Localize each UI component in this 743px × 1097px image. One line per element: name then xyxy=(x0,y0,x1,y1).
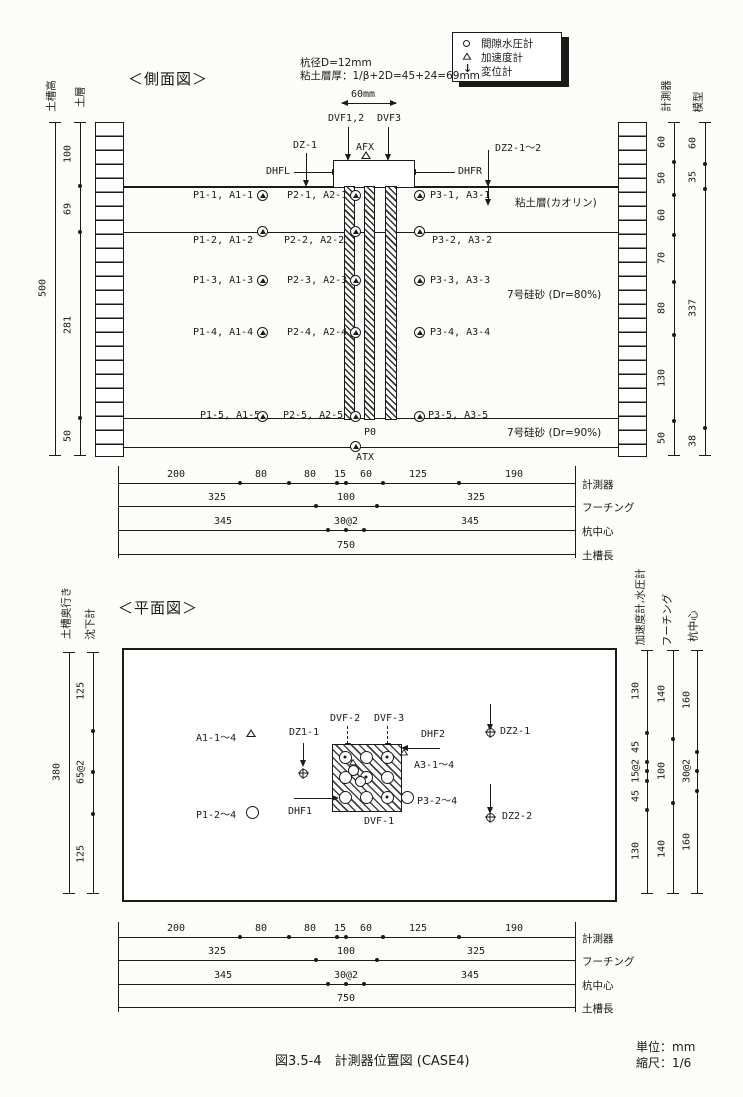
dim-value: 325 xyxy=(467,946,485,957)
dim-seg: 50 xyxy=(63,430,74,442)
footing-side-view xyxy=(333,160,415,188)
sensor-row-label: P1-1, A1-1 xyxy=(193,190,253,201)
sensor-row-label: P3-3, A3-3 xyxy=(430,275,490,286)
table-row-label: 計測器 xyxy=(582,477,614,492)
dot xyxy=(645,779,649,783)
dimension-line xyxy=(673,650,674,893)
pp-accel-sensor-icon xyxy=(257,411,268,422)
dot xyxy=(91,729,95,733)
dimension-line xyxy=(80,122,81,455)
pp-accel-sensor-icon xyxy=(350,275,361,286)
dim-seg: 50 xyxy=(657,172,668,184)
dim-value: 125 xyxy=(409,469,427,480)
dot xyxy=(703,426,707,430)
dim-value: 60 xyxy=(360,469,372,480)
settlement-target-icon xyxy=(486,728,495,737)
dvf12-label: DVF1,2 xyxy=(328,113,364,124)
drawing-sheet: ↓ 間隙水圧計 加速度計 変位計 ＜側面図＞ 杭径D=12mm 粘土層厚：1/β… xyxy=(0,0,743,1097)
pp-accel-sensor-icon xyxy=(257,327,268,338)
dot xyxy=(78,230,82,234)
tick xyxy=(691,893,703,894)
dot xyxy=(672,193,676,197)
a1-group-label: A1-1〜4 xyxy=(196,729,236,744)
width-dim-arrow xyxy=(342,103,396,104)
accelerometer-icon xyxy=(463,52,472,59)
dim-value: 200 xyxy=(167,923,185,934)
dvf-arrow xyxy=(388,127,389,155)
dhfl-arrow xyxy=(294,172,332,173)
dot xyxy=(362,528,366,532)
dim-value: 325 xyxy=(208,492,226,503)
dim-total: 380 xyxy=(52,763,63,781)
dim-seg: 65@2 xyxy=(76,760,87,784)
pile-head xyxy=(360,751,373,764)
scale-note: 縮尺：1/6 xyxy=(636,1054,691,1071)
sensor-dot xyxy=(365,776,368,779)
dot xyxy=(457,481,461,485)
dim-value: 80 xyxy=(304,923,316,934)
dvf3-label: DVF-3 xyxy=(374,713,404,724)
dz11-arrow xyxy=(303,743,304,761)
dot xyxy=(671,737,675,741)
tick xyxy=(668,122,680,123)
table-border xyxy=(118,922,119,1012)
table-border xyxy=(575,922,576,1012)
legend-label: 間隙水圧計 xyxy=(481,36,534,51)
settlement-target-icon xyxy=(486,813,495,822)
dhfr-label: DHFR xyxy=(458,166,482,177)
dim-seg: 70 xyxy=(657,252,668,264)
sensor-dot xyxy=(344,756,347,759)
sensor-row-label: P3-2, A3-2 xyxy=(432,235,492,246)
dim-value: 345 xyxy=(461,516,479,527)
dot xyxy=(645,760,649,764)
sensor-row-label: P2-4, A2-4 xyxy=(287,327,347,338)
sensor-row-label: P3-1, A3-1 xyxy=(430,190,490,201)
p0-label: P0 xyxy=(364,427,376,438)
dot xyxy=(78,184,82,188)
dot xyxy=(672,280,676,284)
dim-seg: 130 xyxy=(631,682,642,700)
dim-seg: 140 xyxy=(657,840,668,858)
table-line xyxy=(118,1007,575,1008)
dot xyxy=(91,812,95,816)
pile-shaft xyxy=(344,186,355,420)
side-view-title: ＜側面図＞ xyxy=(128,68,208,89)
dot xyxy=(375,504,379,508)
dim-value: 345 xyxy=(461,970,479,981)
sensor-row-label: P2-2, A2-2 xyxy=(284,235,344,246)
sensor-dot xyxy=(386,756,389,759)
dz11-label: DZ1-1 xyxy=(289,727,319,738)
pile-head xyxy=(339,791,352,804)
tick xyxy=(49,122,61,123)
dim-value: 100 xyxy=(337,946,355,957)
dim-value: 345 xyxy=(214,516,232,527)
dim-value: 80 xyxy=(304,469,316,480)
dot xyxy=(326,528,330,532)
dot xyxy=(314,504,318,508)
tank-height-header: 土槽高 xyxy=(44,80,59,112)
dim-value: 200 xyxy=(167,469,185,480)
dim-value: 15 xyxy=(334,923,346,934)
soil-layer-header: 土層 xyxy=(73,87,88,108)
tick xyxy=(667,893,679,894)
tick xyxy=(49,455,61,456)
dot xyxy=(344,935,348,939)
tick xyxy=(74,122,86,123)
dot xyxy=(672,333,676,337)
sensor-row-label: P3-4, A3-4 xyxy=(430,327,490,338)
dim-value: 750 xyxy=(337,993,355,1004)
tick xyxy=(87,893,99,894)
table-border xyxy=(575,466,576,558)
pp-accel-sensor-icon xyxy=(414,190,425,201)
clay-thickness-note: 粘土層厚：1/β+2D=45+24=69mm xyxy=(300,68,480,83)
table-row-label: 計測器 xyxy=(582,931,614,946)
tick xyxy=(699,122,711,123)
dim-seg: 140 xyxy=(657,685,668,703)
accelerometer-icon xyxy=(349,759,357,765)
table-row-label: 杭中心 xyxy=(582,524,614,539)
p3-group-label: P3-2〜4 xyxy=(417,792,457,807)
dim-value: 750 xyxy=(337,540,355,551)
width-dim-label: 60mm xyxy=(351,89,375,100)
dot xyxy=(671,801,675,805)
dot xyxy=(645,808,649,812)
dim-seg: 337 xyxy=(688,299,699,317)
dim-seg: 60 xyxy=(688,137,699,149)
pile-head xyxy=(348,765,359,776)
tick xyxy=(87,652,99,653)
sensor-row-label: P1-4, A1-4 xyxy=(193,327,253,338)
dimension-line xyxy=(55,122,56,455)
sand80-layer-label: 7号硅砂 (Dr=80%) xyxy=(507,287,601,302)
legend-label: 変位計 xyxy=(481,64,513,79)
atx-label: ATX xyxy=(356,452,374,463)
dot xyxy=(314,958,318,962)
table-row-label: 杭中心 xyxy=(582,978,614,993)
dot xyxy=(703,187,707,191)
pp-accel-sensor-icon xyxy=(414,226,425,237)
tick xyxy=(668,455,680,456)
dvf-arrow xyxy=(347,726,348,744)
dvf-arrow xyxy=(387,726,388,744)
dot xyxy=(78,416,82,420)
dz22-label: DZ2-2 xyxy=(502,811,532,822)
dvf-arrow xyxy=(348,127,349,155)
dot xyxy=(381,481,385,485)
dz2-label: DZ2-1〜2 xyxy=(495,139,541,154)
dim-value: 60 xyxy=(360,923,372,934)
pp-accel-sensor-icon xyxy=(257,190,268,201)
sand90-layer-label: 7号硅砂 (Dr=90%) xyxy=(507,425,601,440)
dot xyxy=(703,162,707,166)
pp-accel-sensor-icon xyxy=(350,327,361,338)
dim-seg: 281 xyxy=(63,316,74,334)
dot xyxy=(91,770,95,774)
dz1-label: DZ-1 xyxy=(293,140,317,151)
instrument-dims-header: 計測器 xyxy=(659,80,674,112)
dvf1-label: DVF-1 xyxy=(364,816,394,827)
pile-shaft xyxy=(364,186,375,420)
dim-value: 15 xyxy=(334,469,346,480)
dim-seg: 80 xyxy=(657,302,668,314)
settlement-target-icon xyxy=(299,769,308,778)
settlement-gauge-header: 沈下計 xyxy=(83,608,98,640)
dim-seg: 50 xyxy=(657,432,668,444)
dim-value: 80 xyxy=(255,469,267,480)
pile-shaft xyxy=(385,186,397,420)
sensor-row-label: P1-3, A1-3 xyxy=(193,275,253,286)
sensor-row-label: P2-5, A2-5 xyxy=(283,410,343,421)
tick xyxy=(641,893,653,894)
dot xyxy=(672,160,676,164)
sensor-row-label: P2-1, A2-1 xyxy=(287,190,347,201)
a3-accelerometer-icon xyxy=(400,749,409,756)
table-line xyxy=(118,506,575,507)
dot xyxy=(695,750,699,754)
dim-value: 80 xyxy=(255,923,267,934)
sensor-row-label: P1-5, A1-5 xyxy=(200,410,260,421)
pp-accel-sensor-icon xyxy=(414,411,425,422)
tick xyxy=(63,893,75,894)
dz1-arrow xyxy=(306,153,307,181)
sensor-row-label: P1-2, A1-2 xyxy=(193,235,253,246)
table-row-label: フーチング xyxy=(582,954,635,969)
table-border xyxy=(118,466,119,558)
dim-value: 325 xyxy=(467,492,485,503)
sensor-row-label: P2-3, A2-3 xyxy=(287,275,347,286)
tick xyxy=(691,650,703,651)
accelerometer-icon xyxy=(246,729,256,737)
table-row-label: 土槽長 xyxy=(582,1001,614,1016)
dot xyxy=(344,481,348,485)
dim-seg: 69 xyxy=(63,203,74,215)
dot xyxy=(344,982,348,986)
dot xyxy=(335,935,339,939)
pp-accel-sensor-icon xyxy=(350,190,361,201)
right-tank-wall xyxy=(618,122,647,457)
dim-value: 125 xyxy=(409,923,427,934)
dim-seg: 160 xyxy=(682,691,693,709)
dhf1-arrow xyxy=(294,798,332,799)
pile-center-dims-header: 杭中心 xyxy=(686,610,701,642)
dot xyxy=(238,481,242,485)
table-line xyxy=(118,554,575,555)
dhf2-arrow xyxy=(408,748,440,749)
left-tank-wall xyxy=(95,122,124,457)
dim-seg: 35 xyxy=(688,171,699,183)
dim-seg: 30@2 xyxy=(682,759,693,783)
dhfl-label: DHFL xyxy=(266,166,290,177)
pore-pressure-gauge-icon xyxy=(463,40,470,47)
dot xyxy=(645,769,649,773)
pile-head xyxy=(381,771,394,784)
dim-value: 325 xyxy=(208,946,226,957)
dot xyxy=(238,935,242,939)
tick xyxy=(63,652,75,653)
dim-seg: 125 xyxy=(76,682,87,700)
dim-total: 500 xyxy=(38,279,49,297)
pp-accel-sensor-icon xyxy=(350,226,361,237)
tick xyxy=(699,455,711,456)
dim-value: 345 xyxy=(214,970,232,981)
dim-value: 190 xyxy=(505,469,523,480)
dz21-label: DZ2-1 xyxy=(500,726,530,737)
dim-seg: 130 xyxy=(631,842,642,860)
dim-seg: 125 xyxy=(76,845,87,863)
dim-value: 30@2 xyxy=(334,970,358,981)
dot xyxy=(672,419,676,423)
dvf2-label: DVF-2 xyxy=(330,713,360,724)
table-line xyxy=(118,960,575,961)
dim-seg: 60 xyxy=(657,136,668,148)
dim-seg: 45 xyxy=(631,790,642,802)
pp-accel-sensor-icon xyxy=(350,411,361,422)
afx-accelerometer-icon xyxy=(361,151,371,159)
p1-group-label: P1-2〜4 xyxy=(196,806,236,821)
table-row-label: フーチング xyxy=(582,500,635,515)
dim-seg: 15@2 xyxy=(631,759,642,783)
dim-seg: 100 xyxy=(63,145,74,163)
dot xyxy=(326,982,330,986)
dot xyxy=(362,982,366,986)
dimension-line xyxy=(674,122,675,455)
p3-gauge-icon xyxy=(401,791,414,804)
pp-accel-sensor-icon xyxy=(257,275,268,286)
a3-group-label: A3-1〜4 xyxy=(414,756,454,771)
dvf3-label: DVF3 xyxy=(377,113,401,124)
tick xyxy=(74,455,86,456)
sensor-dot xyxy=(386,796,389,799)
dot xyxy=(381,935,385,939)
tick xyxy=(667,650,679,651)
dot xyxy=(695,789,699,793)
dim-value: 100 xyxy=(337,492,355,503)
pp-accel-sensor-icon xyxy=(257,226,268,237)
dz21-arrow xyxy=(490,704,491,725)
dot xyxy=(287,481,291,485)
dot xyxy=(457,935,461,939)
dot xyxy=(695,769,699,773)
dimension-line xyxy=(705,122,706,455)
footing-dims-header: フーチング xyxy=(660,594,675,647)
dot xyxy=(287,935,291,939)
legend-label: 加速度計 xyxy=(481,50,523,65)
dim-value: 190 xyxy=(505,923,523,934)
dim-seg: 45 xyxy=(631,741,642,753)
tick xyxy=(641,650,653,651)
pp-accel-sensor-icon xyxy=(350,441,361,452)
dim-seg: 100 xyxy=(657,762,668,780)
pp-accel-sensor-icon xyxy=(414,327,425,338)
table-row-label: 土槽長 xyxy=(582,548,614,563)
dim-seg: 130 xyxy=(657,369,668,387)
clay-layer-label: 粘土層(カオリン) xyxy=(515,195,597,210)
sensor-row-label: P3-5, A3-5 xyxy=(428,410,488,421)
plan-view-title: ＜平面図＞ xyxy=(118,597,198,618)
accel-pp-dims-header: 加速度計,水圧計 xyxy=(633,569,648,646)
dot xyxy=(645,731,649,735)
dhf2-label: DHF2 xyxy=(421,729,445,740)
dim-seg: 38 xyxy=(688,435,699,447)
dim-value: 30@2 xyxy=(334,516,358,527)
unit-note: 単位：mm xyxy=(636,1038,695,1055)
dot xyxy=(344,528,348,532)
dz22-arrow xyxy=(490,784,491,808)
figure-caption: 図3.5-4 計測器位置図 (CASE4) xyxy=(275,1050,470,1069)
pp-accel-sensor-icon xyxy=(414,275,425,286)
p1-gauge-icon xyxy=(246,806,259,819)
dim-seg: 60 xyxy=(657,209,668,221)
tank-bottom-line xyxy=(124,447,618,448)
dot xyxy=(335,481,339,485)
model-dims-header: 模型 xyxy=(691,92,706,113)
dot xyxy=(375,958,379,962)
dim-seg: 160 xyxy=(682,833,693,851)
dhfr-arrow xyxy=(416,172,455,173)
dimension-line xyxy=(69,652,70,893)
pile-head xyxy=(360,791,373,804)
tank-depth-header: 土槽奥行き xyxy=(59,587,74,640)
dot xyxy=(672,233,676,237)
dhf1-label: DHF1 xyxy=(288,806,312,817)
